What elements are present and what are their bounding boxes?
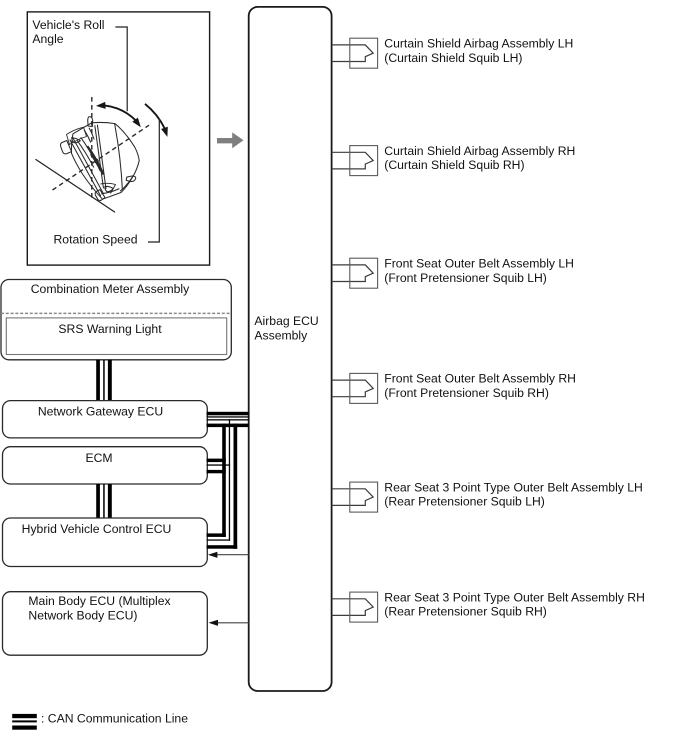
svg-text:(Curtain Shield Squib LH): (Curtain Shield Squib LH)	[384, 51, 522, 65]
svg-text:Rear Seat 3 Point Type Outer B: Rear Seat 3 Point Type Outer Belt Assemb…	[384, 480, 643, 494]
svg-text:Vehicle's Roll: Vehicle's Roll	[32, 18, 104, 32]
svg-text:(Curtain Shield Squib RH): (Curtain Shield Squib RH)	[384, 158, 524, 172]
svg-text:Hybrid Vehicle Control ECU: Hybrid Vehicle Control ECU	[22, 522, 172, 536]
svg-text:(Rear Pretensioner Squib RH): (Rear Pretensioner Squib RH)	[384, 605, 547, 619]
svg-text:ECM: ECM	[85, 451, 112, 465]
svg-text:Rear Seat 3 Point Type Outer B: Rear Seat 3 Point Type Outer Belt Assemb…	[384, 590, 645, 604]
svg-text:Front Seat Outer Belt Assembly: Front Seat Outer Belt Assembly RH	[384, 372, 576, 386]
svg-text:Curtain Shield Airbag Assembly: Curtain Shield Airbag Assembly RH	[384, 144, 575, 158]
svg-text:Angle: Angle	[32, 32, 63, 46]
svg-text:Combination Meter Assembly: Combination Meter Assembly	[31, 282, 190, 296]
svg-text:: CAN Communication Line: : CAN Communication Line	[41, 712, 188, 726]
svg-text:(Rear Pretensioner Squib LH): (Rear Pretensioner Squib LH)	[384, 495, 545, 509]
svg-text:Curtain Shield Airbag Assembly: Curtain Shield Airbag Assembly LH	[384, 36, 573, 50]
svg-text:Assembly: Assembly	[254, 329, 308, 343]
svg-text:Front Seat Outer Belt Assembly: Front Seat Outer Belt Assembly LH	[384, 256, 574, 270]
svg-text:(Front Pretensioner Squib LH): (Front Pretensioner Squib LH)	[384, 271, 547, 285]
svg-text:Network Body ECU): Network Body ECU)	[28, 608, 137, 622]
svg-text:Rotation Speed: Rotation Speed	[54, 233, 138, 247]
svg-text:Network Gateway ECU: Network Gateway ECU	[38, 404, 163, 418]
svg-text:SRS Warning Light: SRS Warning Light	[58, 322, 162, 336]
svg-text:Main Body ECU (Multiplex: Main Body ECU (Multiplex	[28, 594, 170, 608]
svg-text:(Front Pretensioner Squib RH): (Front Pretensioner Squib RH)	[384, 386, 549, 400]
svg-text:Airbag ECU: Airbag ECU	[254, 314, 318, 328]
